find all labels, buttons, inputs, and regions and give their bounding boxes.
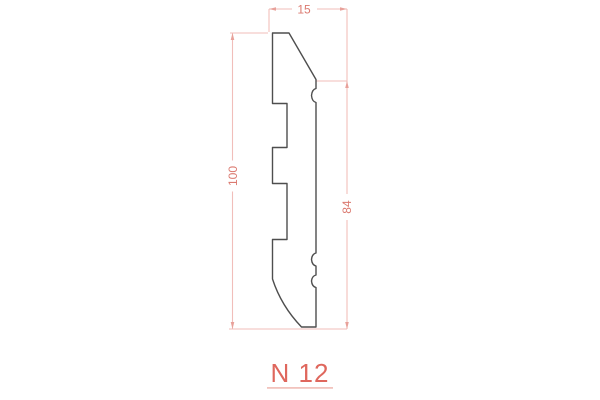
label-underline: [267, 387, 333, 389]
profile-drawing-svg: 15 100 84 N 12: [0, 0, 600, 400]
face-height-dimension-label: 84: [340, 200, 354, 214]
profile-name-label: N 12: [271, 358, 330, 388]
arrow-right-icon: [340, 7, 347, 11]
face-height-dimension: 84: [339, 194, 354, 220]
dimension-labels: 15 100 84: [225, 3, 355, 221]
total-height-dimension: 100: [225, 161, 241, 192]
dimension-arrows: [231, 7, 349, 329]
arrow-up-icon: [345, 81, 349, 88]
profile-outline: [273, 33, 317, 327]
page-background: 15 100 84 N 12: [0, 0, 600, 400]
arrow-down-icon: [345, 322, 349, 329]
height-dimension-label: 100: [226, 166, 240, 186]
arrow-down-icon: [231, 322, 235, 329]
width-dimension-label: 15: [297, 3, 311, 17]
dimension-lines: [229, 9, 347, 329]
arrow-up-icon: [231, 33, 235, 40]
arrow-left-icon: [269, 7, 276, 11]
technical-drawing: 15 100 84 N 12: [0, 0, 600, 400]
